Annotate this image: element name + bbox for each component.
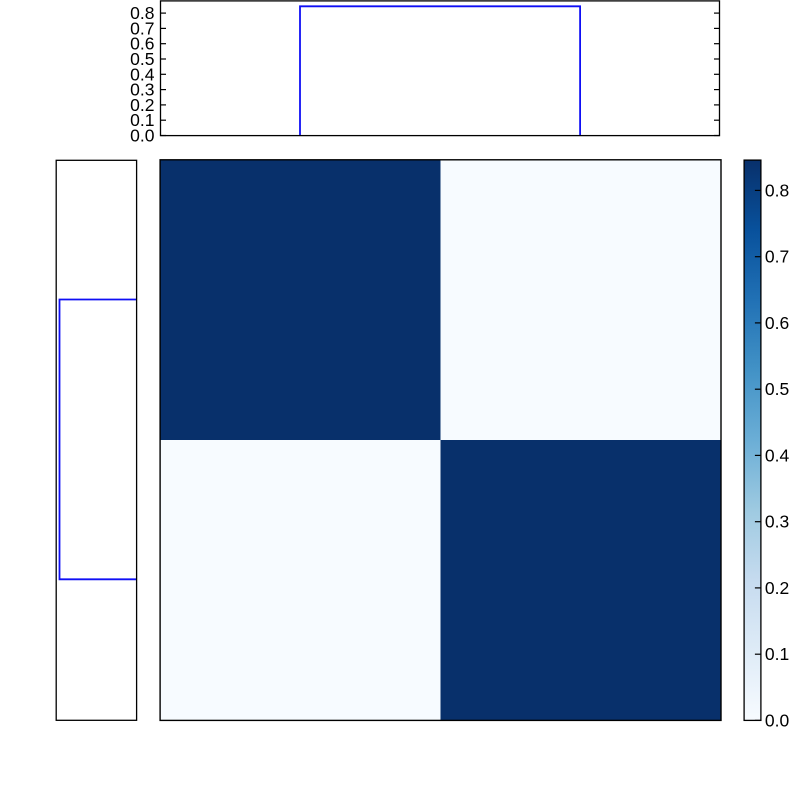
svg-text:0.1: 0.1 [765, 644, 789, 664]
svg-text:0.2: 0.2 [765, 578, 789, 598]
svg-text:0.8: 0.8 [765, 180, 789, 200]
svg-text:0.5: 0.5 [765, 379, 789, 399]
svg-text:0.8: 0.8 [130, 3, 154, 23]
svg-text:0.7: 0.7 [765, 247, 789, 267]
svg-text:0.3: 0.3 [765, 512, 789, 532]
svg-text:0.4: 0.4 [765, 445, 790, 465]
svg-text:0.6: 0.6 [765, 313, 789, 333]
svg-text:0.0: 0.0 [765, 710, 790, 730]
